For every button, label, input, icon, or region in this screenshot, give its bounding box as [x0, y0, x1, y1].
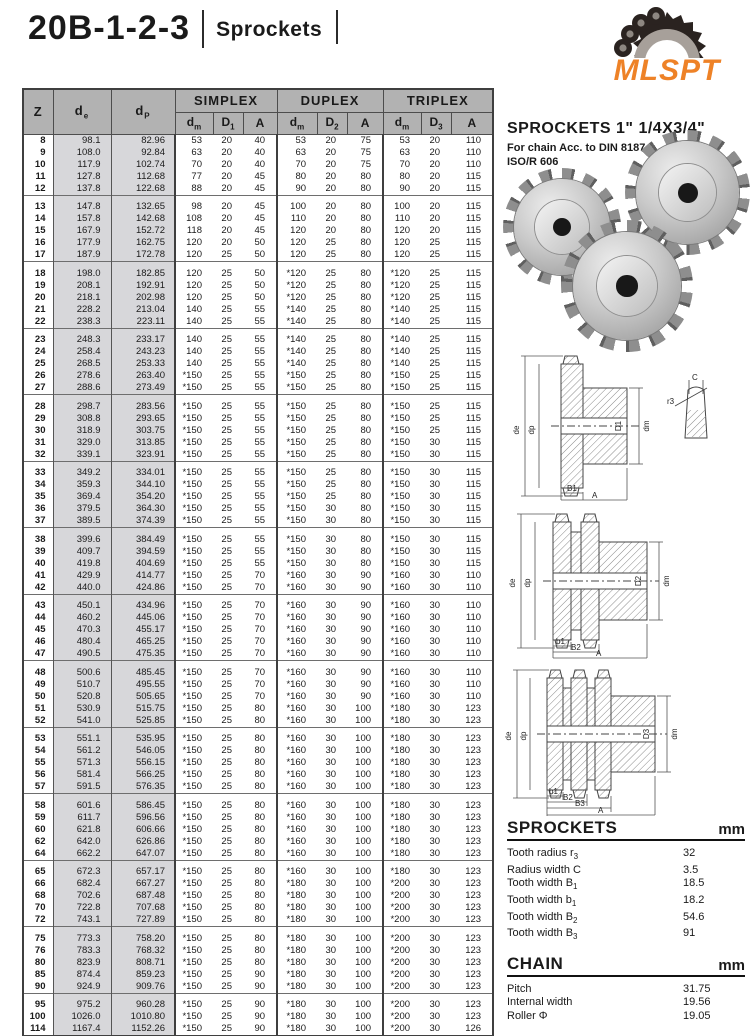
table-cell: 657.17 [111, 866, 175, 878]
table-row: 95975.2960.28*1502590*18030100*20030123 [23, 999, 493, 1011]
table-cell: 30 [421, 757, 451, 769]
spec-label: Tooth width b1 [507, 894, 683, 911]
table-cell: *150 [175, 902, 213, 914]
table-cell: 80 [347, 316, 383, 329]
table-cell: 25 [213, 969, 243, 981]
sprockets-spec-title: SPROCKETS [507, 818, 617, 838]
table-cell: 25 [213, 413, 243, 425]
table-row: 60621.8606.66*1502580*16030100*18030123 [23, 824, 493, 836]
catalog-page: 20B-1-2-3 Sprockets [0, 0, 750, 1036]
table-cell: 123 [451, 969, 493, 981]
table-cell: 25 [317, 249, 347, 262]
sprocket-chain-logo-icon [608, 6, 726, 58]
table-cell: 42 [23, 582, 53, 595]
table-cell: 110 [451, 600, 493, 612]
page-title: 20B-1-2-3 [28, 10, 190, 46]
table-cell: 80 [243, 781, 277, 794]
table-cell: *180 [277, 969, 317, 981]
table-cell: 75 [347, 159, 383, 171]
table-cell: 20 [23, 292, 53, 304]
table-cell: *160 [277, 866, 317, 878]
table-cell: 25 [213, 515, 243, 528]
table-cell: *150 [277, 425, 317, 437]
table-cell: *160 [277, 812, 317, 824]
spec-value: 3.5 [683, 864, 745, 878]
table-cell: 115 [451, 413, 493, 425]
table-cell: 647.07 [111, 848, 175, 861]
table-cell: 70 [175, 159, 213, 171]
chain-spec-unit: mm [718, 957, 745, 974]
table-cell: 808.71 [111, 957, 175, 969]
table-cell: 1167.4 [53, 1023, 111, 1036]
svg-text:dm: dm [662, 575, 671, 586]
svg-text:r3: r3 [667, 397, 675, 406]
table-cell: 80 [23, 957, 53, 969]
table-cell: 369.4 [53, 491, 111, 503]
table-cell: 30 [421, 890, 451, 902]
table-cell: 80 [243, 848, 277, 861]
table-cell: 30 [317, 902, 347, 914]
table-cell: 25 [213, 890, 243, 902]
table-cell: 80 [243, 957, 277, 969]
table-cell: 20 [213, 159, 243, 171]
table-cell: 110 [451, 636, 493, 648]
table-cell: 349.2 [53, 467, 111, 479]
table-row: 80823.9808.71*1502580*18030100*20030123 [23, 957, 493, 969]
table-cell: 198.0 [53, 268, 111, 280]
table-cell: *180 [383, 745, 421, 757]
table-cell: 218.1 [53, 292, 111, 304]
table-cell: 56 [23, 769, 53, 781]
table-cell: *150 [175, 715, 213, 728]
table-cell: 13 [23, 201, 53, 213]
table-cell: *150 [175, 945, 213, 957]
table-cell: 90 [347, 691, 383, 703]
table-cell: 120 [383, 249, 421, 262]
table-cell: 115 [451, 213, 493, 225]
table-row: 35369.4354.20*1502555*1502580*15030115 [23, 491, 493, 503]
table-cell: 30 [317, 582, 347, 595]
brand-name: MLSPT [592, 58, 742, 84]
section-header: DUPLEX [277, 89, 383, 112]
table-cell: 123 [451, 945, 493, 957]
table-cell: 98 [175, 201, 213, 213]
table-cell: *160 [383, 582, 421, 595]
table-cell: *180 [383, 824, 421, 836]
table-cell: 30 [317, 945, 347, 957]
table-cell: *150 [175, 824, 213, 836]
table-cell: 22 [23, 316, 53, 329]
table-cell: 551.1 [53, 733, 111, 745]
table-cell: 40 [243, 159, 277, 171]
table-cell: 25 [213, 866, 243, 878]
table-cell: *160 [277, 757, 317, 769]
table-row: 41429.9414.77*1502570*1603090*16030110 [23, 570, 493, 582]
table-cell: 404.69 [111, 558, 175, 570]
table-cell: 30 [421, 866, 451, 878]
table-cell: 667.27 [111, 878, 175, 890]
table-cell: 115 [451, 370, 493, 382]
table-cell: *140 [277, 334, 317, 346]
table-cell: 25 [317, 316, 347, 329]
table-cell: 571.3 [53, 757, 111, 769]
table-cell: 63 [175, 147, 213, 159]
table-cell: *200 [383, 914, 421, 927]
table-cell: *150 [175, 570, 213, 582]
table-cell: 123 [451, 800, 493, 812]
svg-text:B2: B2 [571, 643, 581, 652]
table-cell: *150 [277, 491, 317, 503]
table-cell: 25 [421, 346, 451, 358]
table-cell: *150 [277, 382, 317, 395]
table-cell: 25 [213, 491, 243, 503]
table-cell: 120 [175, 292, 213, 304]
table-cell: 20 [421, 171, 451, 183]
table-cell: 25 [421, 425, 451, 437]
table-cell: 329.0 [53, 437, 111, 449]
table-cell: *150 [383, 515, 421, 528]
spec-row: Tooth width B391 [507, 927, 745, 944]
table-cell: 268.5 [53, 358, 111, 370]
table-cell: 40 [243, 147, 277, 159]
table-cell: 120 [175, 237, 213, 249]
table-row: 36379.5364.30*1502555*1503080*15030115 [23, 503, 493, 515]
table-cell: 25 [213, 280, 243, 292]
table-cell: 25 [421, 237, 451, 249]
table-cell: 30 [421, 679, 451, 691]
table-cell: 445.06 [111, 612, 175, 624]
table-cell: 25 [213, 1011, 243, 1023]
table-cell: 25 [213, 945, 243, 957]
table-cell: 25 [213, 848, 243, 861]
table-cell: 49 [23, 679, 53, 691]
table-cell: 123 [451, 781, 493, 794]
table-cell: 25 [213, 534, 243, 546]
table-cell: *150 [175, 612, 213, 624]
table-cell: 123 [451, 1011, 493, 1023]
table-cell: 490.5 [53, 648, 111, 661]
table-cell: 773.3 [53, 933, 111, 945]
table-cell: *160 [277, 570, 317, 582]
table-row: 39409.7394.59*1502555*1503080*15030115 [23, 546, 493, 558]
table-cell: 55 [243, 479, 277, 491]
table-cell: 20 [213, 171, 243, 183]
table-row: 38399.6384.49*1502555*1503080*15030115 [23, 534, 493, 546]
table-row: 26278.6263.40*1502555*1502580*15025115 [23, 370, 493, 382]
table-cell: *180 [277, 902, 317, 914]
table-cell: 30 [421, 836, 451, 848]
spec-row: Radius width C3.5 [507, 864, 745, 878]
table-cell: 25 [317, 334, 347, 346]
table-cell: *160 [277, 836, 317, 848]
table-row: 47490.5475.35*1502570*1603090*16030110 [23, 648, 493, 661]
table-cell: 758.20 [111, 933, 175, 945]
table-cell: 115 [451, 546, 493, 558]
table-cell: 722.8 [53, 902, 111, 914]
table-cell: *150 [175, 425, 213, 437]
table-cell: *140 [277, 316, 317, 329]
table-cell: 515.75 [111, 703, 175, 715]
spec-label: Roller Φ [507, 1010, 683, 1024]
table-row: 42440.0424.86*1502570*1603090*16030110 [23, 582, 493, 595]
table-cell: 115 [451, 382, 493, 395]
table-cell: 30 [421, 733, 451, 745]
table-cell: 25 [213, 824, 243, 836]
table-cell: *180 [383, 866, 421, 878]
table-cell: 25 [421, 334, 451, 346]
table-cell: *150 [175, 969, 213, 981]
table-row: 898.182.965320405320755320110 [23, 134, 493, 147]
table-cell: 137.8 [53, 183, 111, 196]
spec-label: Radius width C [507, 864, 683, 878]
table-cell: 1026.0 [53, 1011, 111, 1023]
table-cell: *180 [277, 890, 317, 902]
table-cell: 132.65 [111, 201, 175, 213]
table-cell: 108.0 [53, 147, 111, 159]
table-cell: 120 [175, 280, 213, 292]
table-cell: 80 [243, 715, 277, 728]
column-header: A [347, 112, 383, 134]
table-cell: 25 [213, 999, 243, 1011]
table-cell: 75 [347, 147, 383, 159]
table-cell: 90 [243, 981, 277, 994]
table-cell: 123 [451, 745, 493, 757]
table-cell: 115 [451, 334, 493, 346]
table-row: 14157.8142.681082045110208011020115 [23, 213, 493, 225]
table-cell: 238.3 [53, 316, 111, 329]
column-header: Z [23, 89, 53, 134]
table-cell: 25 [317, 425, 347, 437]
table-cell: 120 [277, 249, 317, 262]
table-cell: 25 [317, 292, 347, 304]
table-cell: 80 [347, 467, 383, 479]
table-cell: 25 [317, 491, 347, 503]
table-row: 51530.9515.75*1502580*16030100*18030123 [23, 703, 493, 715]
table-cell: 100 [347, 1011, 383, 1023]
table-cell: 424.86 [111, 582, 175, 595]
table-cell: 30 [317, 781, 347, 794]
spec-row: Roller Φ19.05 [507, 1010, 745, 1024]
table-cell: 53 [383, 134, 421, 147]
table-cell: *200 [383, 902, 421, 914]
table-cell: 213.04 [111, 304, 175, 316]
spec-lists: SPROCKETS mm Tooth radius r332Radius wid… [507, 818, 745, 1036]
table-cell: 122.68 [111, 183, 175, 196]
table-cell: 208.1 [53, 280, 111, 292]
table-cell: 80 [347, 546, 383, 558]
table-cell: *150 [175, 479, 213, 491]
table-cell: 80 [347, 358, 383, 370]
table-cell: 20 [421, 147, 451, 159]
table-cell: 123 [451, 703, 493, 715]
table-cell: 127.8 [53, 171, 111, 183]
table-cell: 115 [451, 515, 493, 528]
table-cell: 80 [347, 249, 383, 262]
svg-text:B3: B3 [575, 799, 585, 808]
table-cell: 30 [317, 612, 347, 624]
table-cell: 115 [451, 201, 493, 213]
column-header: dm [383, 112, 421, 134]
table-row: 57591.5576.35*1502580*16030100*18030123 [23, 781, 493, 794]
svg-text:A: A [598, 806, 604, 815]
svg-text:A: A [596, 649, 602, 658]
table-cell: 561.2 [53, 745, 111, 757]
table-cell: 80 [347, 503, 383, 515]
table-cell: 126 [451, 1023, 493, 1036]
table-cell: *150 [175, 890, 213, 902]
spec-value: 54.6 [683, 911, 745, 928]
table-row: 34359.3344.10*1502555*1502580*15030115 [23, 479, 493, 491]
table-cell: 25 [213, 878, 243, 890]
table-cell: 30 [317, 933, 347, 945]
svg-text:dm: dm [642, 420, 651, 431]
table-cell: 115 [451, 292, 493, 304]
table-cell: 30 [421, 503, 451, 515]
svg-text:A: A [592, 491, 598, 500]
table-row: 49510.7495.55*1502570*1603090*16030110 [23, 679, 493, 691]
table-cell: 672.3 [53, 866, 111, 878]
table-cell: 55 [243, 401, 277, 413]
table-cell: 115 [451, 268, 493, 280]
table-cell: 25 [421, 413, 451, 425]
table-cell: *180 [277, 945, 317, 957]
table-cell: *150 [175, 703, 213, 715]
table-cell: 55 [243, 467, 277, 479]
table-cell: 30 [421, 933, 451, 945]
table-row: 54561.2546.05*1502580*16030100*18030123 [23, 745, 493, 757]
table-cell: 25 [213, 268, 243, 280]
table-cell: *120 [383, 292, 421, 304]
table-cell: 100 [347, 890, 383, 902]
table-cell: *160 [277, 667, 317, 679]
table-cell: 36 [23, 503, 53, 515]
table-cell: 51 [23, 703, 53, 715]
table-cell: 45 [243, 201, 277, 213]
table-cell: 30 [317, 515, 347, 528]
table-cell: 303.75 [111, 425, 175, 437]
table-cell: *140 [383, 304, 421, 316]
table-row: 53551.1535.95*1502580*16030100*18030123 [23, 733, 493, 745]
table-cell: 120 [383, 225, 421, 237]
table-cell: 308.8 [53, 413, 111, 425]
table-cell: 8 [23, 134, 53, 147]
table-cell: *150 [277, 413, 317, 425]
table-cell: *160 [277, 848, 317, 861]
column-header: D3 [421, 112, 451, 134]
table-cell: *150 [175, 1011, 213, 1023]
table-cell: 556.15 [111, 757, 175, 769]
table-cell: 43 [23, 600, 53, 612]
table-cell: 30 [317, 999, 347, 1011]
table-cell: 80 [347, 534, 383, 546]
table-cell: 115 [451, 449, 493, 462]
table-cell: *150 [175, 401, 213, 413]
table-cell: *150 [175, 491, 213, 503]
table-cell: *150 [175, 515, 213, 528]
chain-spec-header: CHAIN mm [507, 954, 745, 977]
table-cell: 30 [421, 570, 451, 582]
table-cell: 80 [347, 280, 383, 292]
table-row: 22238.3223.111402555*1402580*14025115 [23, 316, 493, 329]
table-cell: 30 [421, 636, 451, 648]
table-row: 1141167.41152.26*1502590*18030100*200301… [23, 1023, 493, 1036]
table-cell: 30 [23, 425, 53, 437]
table-cell: 100 [347, 902, 383, 914]
table-cell: 100 [347, 745, 383, 757]
table-cell: 100 [347, 733, 383, 745]
table-cell: 63 [383, 147, 421, 159]
table-cell: 92.84 [111, 147, 175, 159]
table-cell: 123 [451, 957, 493, 969]
table-cell: 123 [451, 824, 493, 836]
table-cell: 50 [243, 237, 277, 249]
table-cell: 30 [421, 824, 451, 836]
table-cell: 30 [317, 733, 347, 745]
table-cell: 20 [421, 159, 451, 171]
table-cell: 25 [213, 636, 243, 648]
table-row: 13147.8132.65982045100208010020115 [23, 201, 493, 213]
table-cell: *150 [175, 781, 213, 794]
table-cell: *150 [383, 534, 421, 546]
table-cell: 374.39 [111, 515, 175, 528]
table-cell: *180 [383, 715, 421, 728]
table-cell: 30 [317, 969, 347, 981]
table-cell: 55 [243, 370, 277, 382]
table-cell: 70 [243, 570, 277, 582]
table-cell: *180 [277, 878, 317, 890]
table-cell: *150 [175, 812, 213, 824]
table-cell: 80 [347, 346, 383, 358]
table-cell: *160 [277, 824, 317, 836]
table-cell: *150 [175, 624, 213, 636]
table-cell: 55 [243, 358, 277, 370]
table-cell: 535.95 [111, 733, 175, 745]
svg-text:B2: B2 [563, 793, 573, 802]
table-cell: *150 [175, 691, 213, 703]
table-cell: *160 [277, 624, 317, 636]
table-cell: 480.4 [53, 636, 111, 648]
table-cell: 60 [23, 824, 53, 836]
table-cell: 25 [213, 249, 243, 262]
table-cell: 90 [347, 600, 383, 612]
table-cell: *160 [277, 715, 317, 728]
table-cell: 100 [347, 933, 383, 945]
table-cell: 30 [421, 467, 451, 479]
table-cell: 687.48 [111, 890, 175, 902]
table-cell: 25 [213, 558, 243, 570]
table-row: 40419.8404.69*1502555*1503080*15030115 [23, 558, 493, 570]
table-cell: *180 [383, 848, 421, 861]
table-cell: 15 [23, 225, 53, 237]
table-cell: 20 [213, 237, 243, 249]
table-cell: 273.49 [111, 382, 175, 395]
table-cell: 32 [23, 449, 53, 462]
table-row: 12137.8122.688820459020809020115 [23, 183, 493, 196]
table-cell: *200 [383, 933, 421, 945]
table-cell: *160 [277, 648, 317, 661]
table-cell: 187.9 [53, 249, 111, 262]
table-cell: 30 [421, 981, 451, 994]
table-cell: 707.68 [111, 902, 175, 914]
table-cell: 359.3 [53, 479, 111, 491]
spec-row: Pitch31.75 [507, 983, 745, 997]
table-cell: 55 [243, 346, 277, 358]
table-cell: 177.9 [53, 237, 111, 249]
table-cell: 30 [317, 824, 347, 836]
table-cell: 53 [277, 134, 317, 147]
table-cell: 90 [347, 648, 383, 661]
spec-value: 18.5 [683, 877, 745, 894]
